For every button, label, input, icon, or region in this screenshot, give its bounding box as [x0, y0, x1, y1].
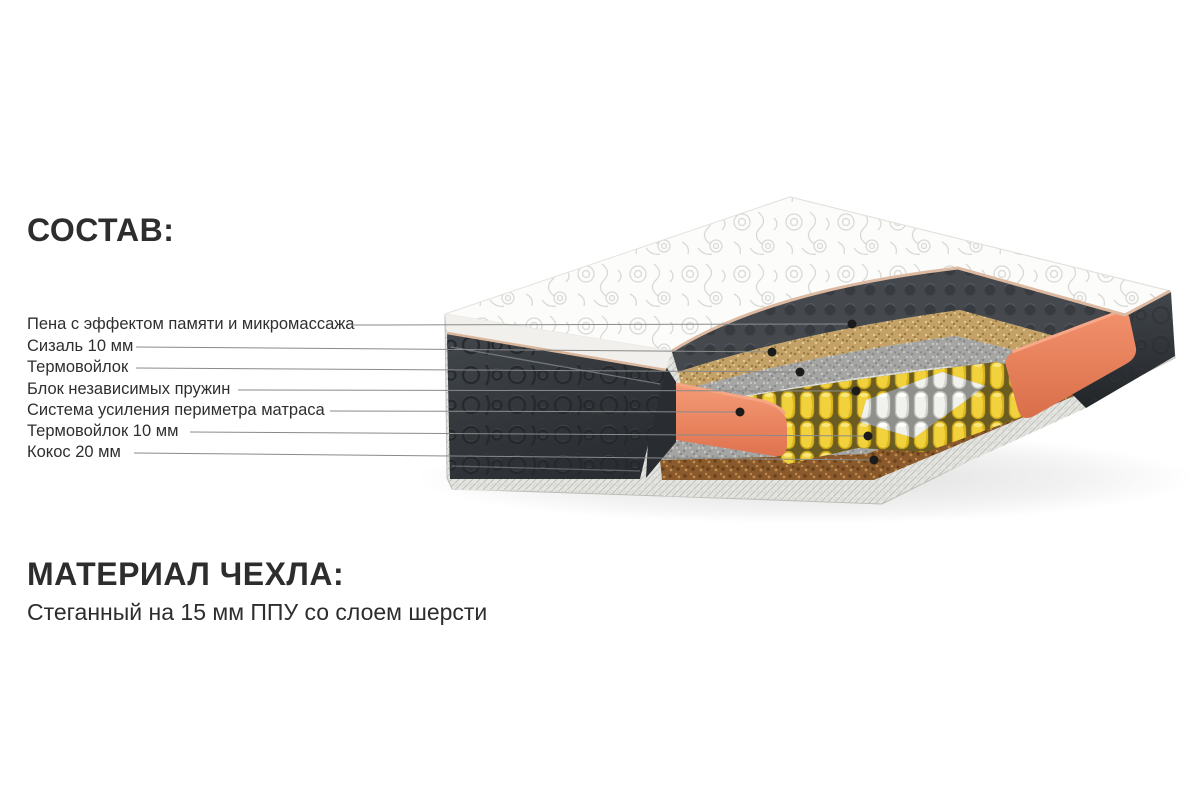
mattress-infographic: СОСТАВ: Пена с эффектом памяти и микрома…	[0, 0, 1191, 794]
callout-dot	[768, 348, 777, 357]
callout-dot	[796, 368, 805, 377]
callout-dot	[870, 456, 879, 465]
side-bottom-rim	[450, 479, 648, 492]
callout-dot	[852, 387, 861, 396]
callout-dot	[736, 408, 745, 417]
mattress-cutaway-diagram	[0, 0, 1191, 794]
callout-dot	[864, 432, 873, 441]
callout-dot	[848, 320, 857, 329]
